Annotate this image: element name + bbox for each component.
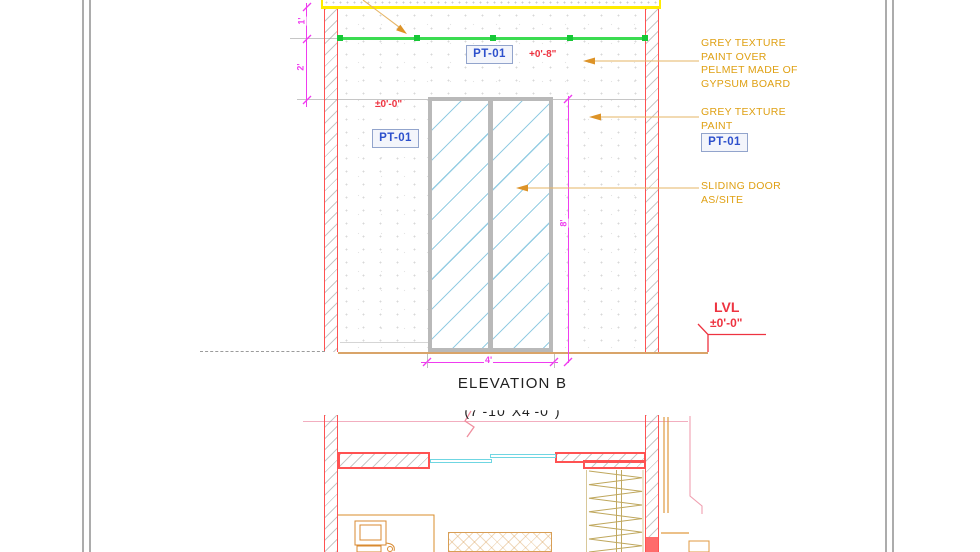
pelmet-grip [414, 35, 420, 41]
ceiling-band [321, 0, 661, 9]
pt01-tag-note: PT-01 [701, 133, 748, 152]
extension-line-doorhead-right [553, 99, 645, 100]
pelmet-grip [337, 35, 343, 41]
plan-sliding-panel-1 [430, 459, 492, 463]
computer-keyboard-icon [357, 546, 381, 552]
plan-desk [338, 515, 434, 552]
pelmet-grip [490, 35, 496, 41]
pt01-tag-wall: PT-01 [372, 129, 419, 148]
door-glass-right [493, 101, 549, 348]
plan-wall-stub-left [338, 452, 430, 469]
pelmet-grip [642, 35, 648, 41]
dim-label-door-height: 8' [559, 218, 569, 227]
wardrobe-hanger-zigzag [589, 471, 642, 552]
note-line: GREY TEXTURE [701, 37, 798, 51]
drawing-sheet: { "colors": { "wall_red": "#ff5252", "di… [0, 0, 980, 552]
sheet-border-left-outer [82, 0, 84, 552]
level-marker-label: LVL [714, 299, 739, 315]
extension-line-doorhead-left [297, 99, 430, 100]
computer-screen-icon [360, 525, 381, 540]
floor-line [338, 352, 708, 354]
note-line: AS/SITE [701, 194, 781, 208]
dim-ext-width-right [554, 354, 555, 368]
note-line: PAINT OVER [701, 51, 798, 65]
elevation-title: ELEVATION B [440, 375, 585, 392]
floor-line-left [200, 351, 325, 352]
note-pelmet: GREY TEXTURE PAINT OVER PELMET MADE OF G… [701, 37, 798, 91]
note-sliding-door: SLIDING DOOR AS/SITE [701, 180, 781, 207]
pelmet-grip [567, 35, 573, 41]
computer-monitor-icon [355, 521, 386, 545]
dim-line-height [568, 96, 569, 363]
note-line: SLIDING DOOR [701, 180, 781, 194]
dim-label-ceiling-to-pelmet: 1' [297, 16, 307, 25]
plan-wardrobe [587, 470, 644, 552]
plan-bed [448, 532, 552, 552]
note-line: PAINT [701, 120, 786, 134]
dim-label-pelmet-height: 2' [296, 62, 306, 71]
level-label-pelmet-top: +0'-8" [529, 49, 556, 60]
plan-dimension-line [303, 421, 688, 422]
sheet-border-left-inner [89, 0, 91, 552]
door-glass-left [432, 101, 488, 348]
plan-wall-right [645, 415, 659, 552]
plan-wall-fill [646, 537, 658, 552]
plan-sliding-panel-2 [490, 454, 556, 458]
dim-label-door-width: 4' [484, 355, 493, 365]
note-line: PELMET MADE OF [701, 64, 798, 78]
dim-ext-width-left [427, 354, 428, 368]
level-marker-value: ±0'-0" [710, 316, 742, 330]
elevation-wall-section-left [324, 9, 338, 352]
elevation-size-note: (7'-10"X4'-0") [440, 403, 585, 419]
skirting-line [340, 342, 428, 343]
sliding-door [428, 97, 553, 352]
computer-mouse-icon [388, 547, 393, 552]
plan-wall-stub-right-step [583, 460, 646, 469]
note-wall-paint: GREY TEXTURE PAINT [701, 106, 786, 133]
note-line: GREY TEXTURE [701, 106, 786, 120]
level-label-door-head: ±0'-0" [375, 99, 402, 110]
note-line: GYPSUM BOARD [701, 78, 798, 92]
elevation-wall-section-right [645, 9, 659, 352]
sheet-border-right-inner [885, 0, 887, 552]
plan-wall-left [324, 415, 338, 552]
plan-right-details [661, 416, 709, 552]
sheet-border-right-outer [892, 0, 894, 552]
pt01-tag-pelmet: PT-01 [466, 45, 513, 64]
computer-cable [386, 543, 394, 551]
